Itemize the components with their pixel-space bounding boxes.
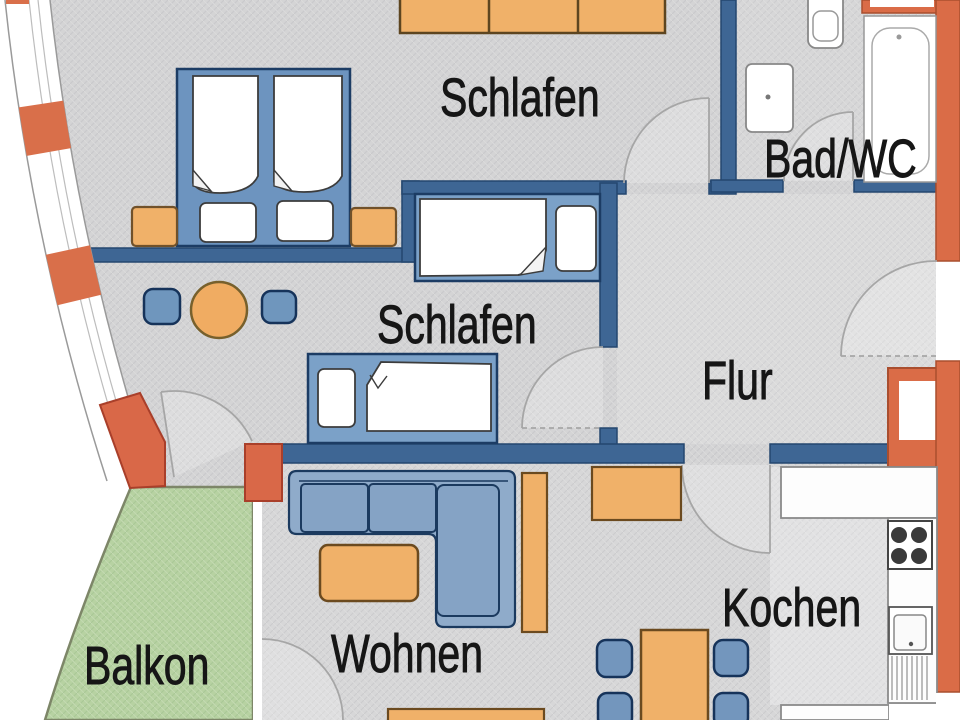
svg-text:Bad/WC: Bad/WC — [764, 130, 917, 190]
svg-text:Wohnen: Wohnen — [331, 625, 483, 685]
svg-text:Schlafen: Schlafen — [377, 296, 537, 356]
svg-text:Kochen: Kochen — [722, 579, 861, 639]
svg-text:Flur: Flur — [702, 352, 773, 412]
svg-text:Schlafen: Schlafen — [440, 69, 600, 129]
svg-text:Balkon: Balkon — [84, 637, 209, 697]
